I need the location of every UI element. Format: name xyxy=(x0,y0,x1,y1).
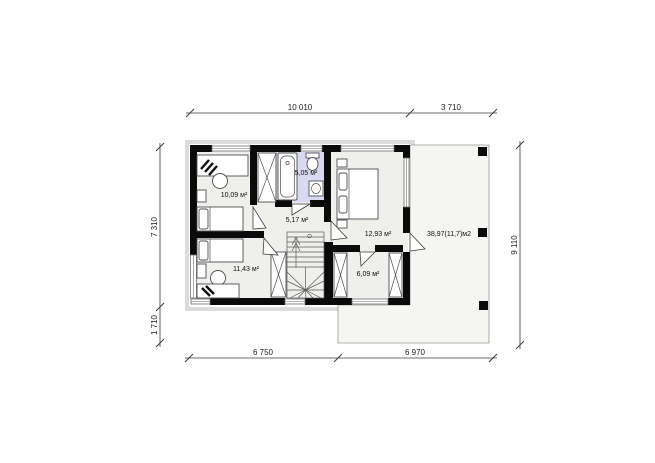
floor-plan-drawing: 10,09 м² 5,05 м² 5,17 м² 12,93 м² 11,43 … xyxy=(0,0,655,463)
dim-bottom-terrace: 6 970 xyxy=(405,348,426,357)
dim-top-terrace: 3 710 xyxy=(441,103,462,112)
dim-bottom-main: 6 750 xyxy=(253,348,274,357)
dimension-right: 9 110 xyxy=(510,141,524,349)
wardrobe-closet-right xyxy=(389,253,402,297)
window xyxy=(212,146,250,151)
dim-top-main: 10 010 xyxy=(288,103,313,112)
room-label-hall: 5,17 м² xyxy=(286,217,309,224)
window xyxy=(341,146,394,151)
room-label-bathroom: 5,05 м² xyxy=(295,170,318,177)
sink xyxy=(309,181,323,196)
wardrobe-closet-left xyxy=(334,253,347,297)
terrace-column xyxy=(478,147,487,156)
office-chair xyxy=(211,271,226,286)
wardrobe-hall xyxy=(258,153,276,202)
window xyxy=(301,146,322,151)
window xyxy=(352,299,388,304)
dimension-left: 7 310 1 710 xyxy=(150,143,164,347)
room-label-bedroom-bottom-left: 11,43 м² xyxy=(233,266,260,273)
window xyxy=(191,255,197,298)
room-label-closet-room: 6,09 м² xyxy=(357,271,380,278)
dim-right-total: 9 110 xyxy=(510,235,519,255)
dimension-top: 10 010 3 710 xyxy=(186,103,497,117)
wardrobe-bedroom-bottom-left xyxy=(271,252,286,297)
office-chair xyxy=(213,174,228,189)
terrace-column xyxy=(478,228,487,237)
bed-double xyxy=(337,169,378,219)
bed-single xyxy=(197,239,243,262)
room-label-terrace: 38,97(11,7)м2 xyxy=(427,231,471,238)
toilet xyxy=(306,153,319,171)
nightstand xyxy=(337,220,347,228)
furniture-bedroom-right xyxy=(337,159,378,228)
room-label-bedroom-right: 12,93 м² xyxy=(365,231,392,238)
desk xyxy=(197,284,239,298)
floor-plan-canvas: 10,09 м² 5,05 м² 5,17 м² 12,93 м² 11,43 … xyxy=(0,0,655,463)
dimension-bottom: 6 750 6 970 xyxy=(185,348,497,362)
dim-left-main: 7 310 xyxy=(150,216,159,237)
room-label-bedroom-top-left: 10,09 м² xyxy=(221,192,248,199)
bed-single xyxy=(197,207,243,231)
terrace-column xyxy=(479,301,488,310)
nightstand xyxy=(197,264,206,278)
dim-left-lower: 1 710 xyxy=(150,314,159,335)
nightstand xyxy=(197,190,206,202)
window xyxy=(191,299,210,304)
nightstand xyxy=(337,159,347,167)
window xyxy=(404,158,409,207)
window xyxy=(285,299,305,304)
